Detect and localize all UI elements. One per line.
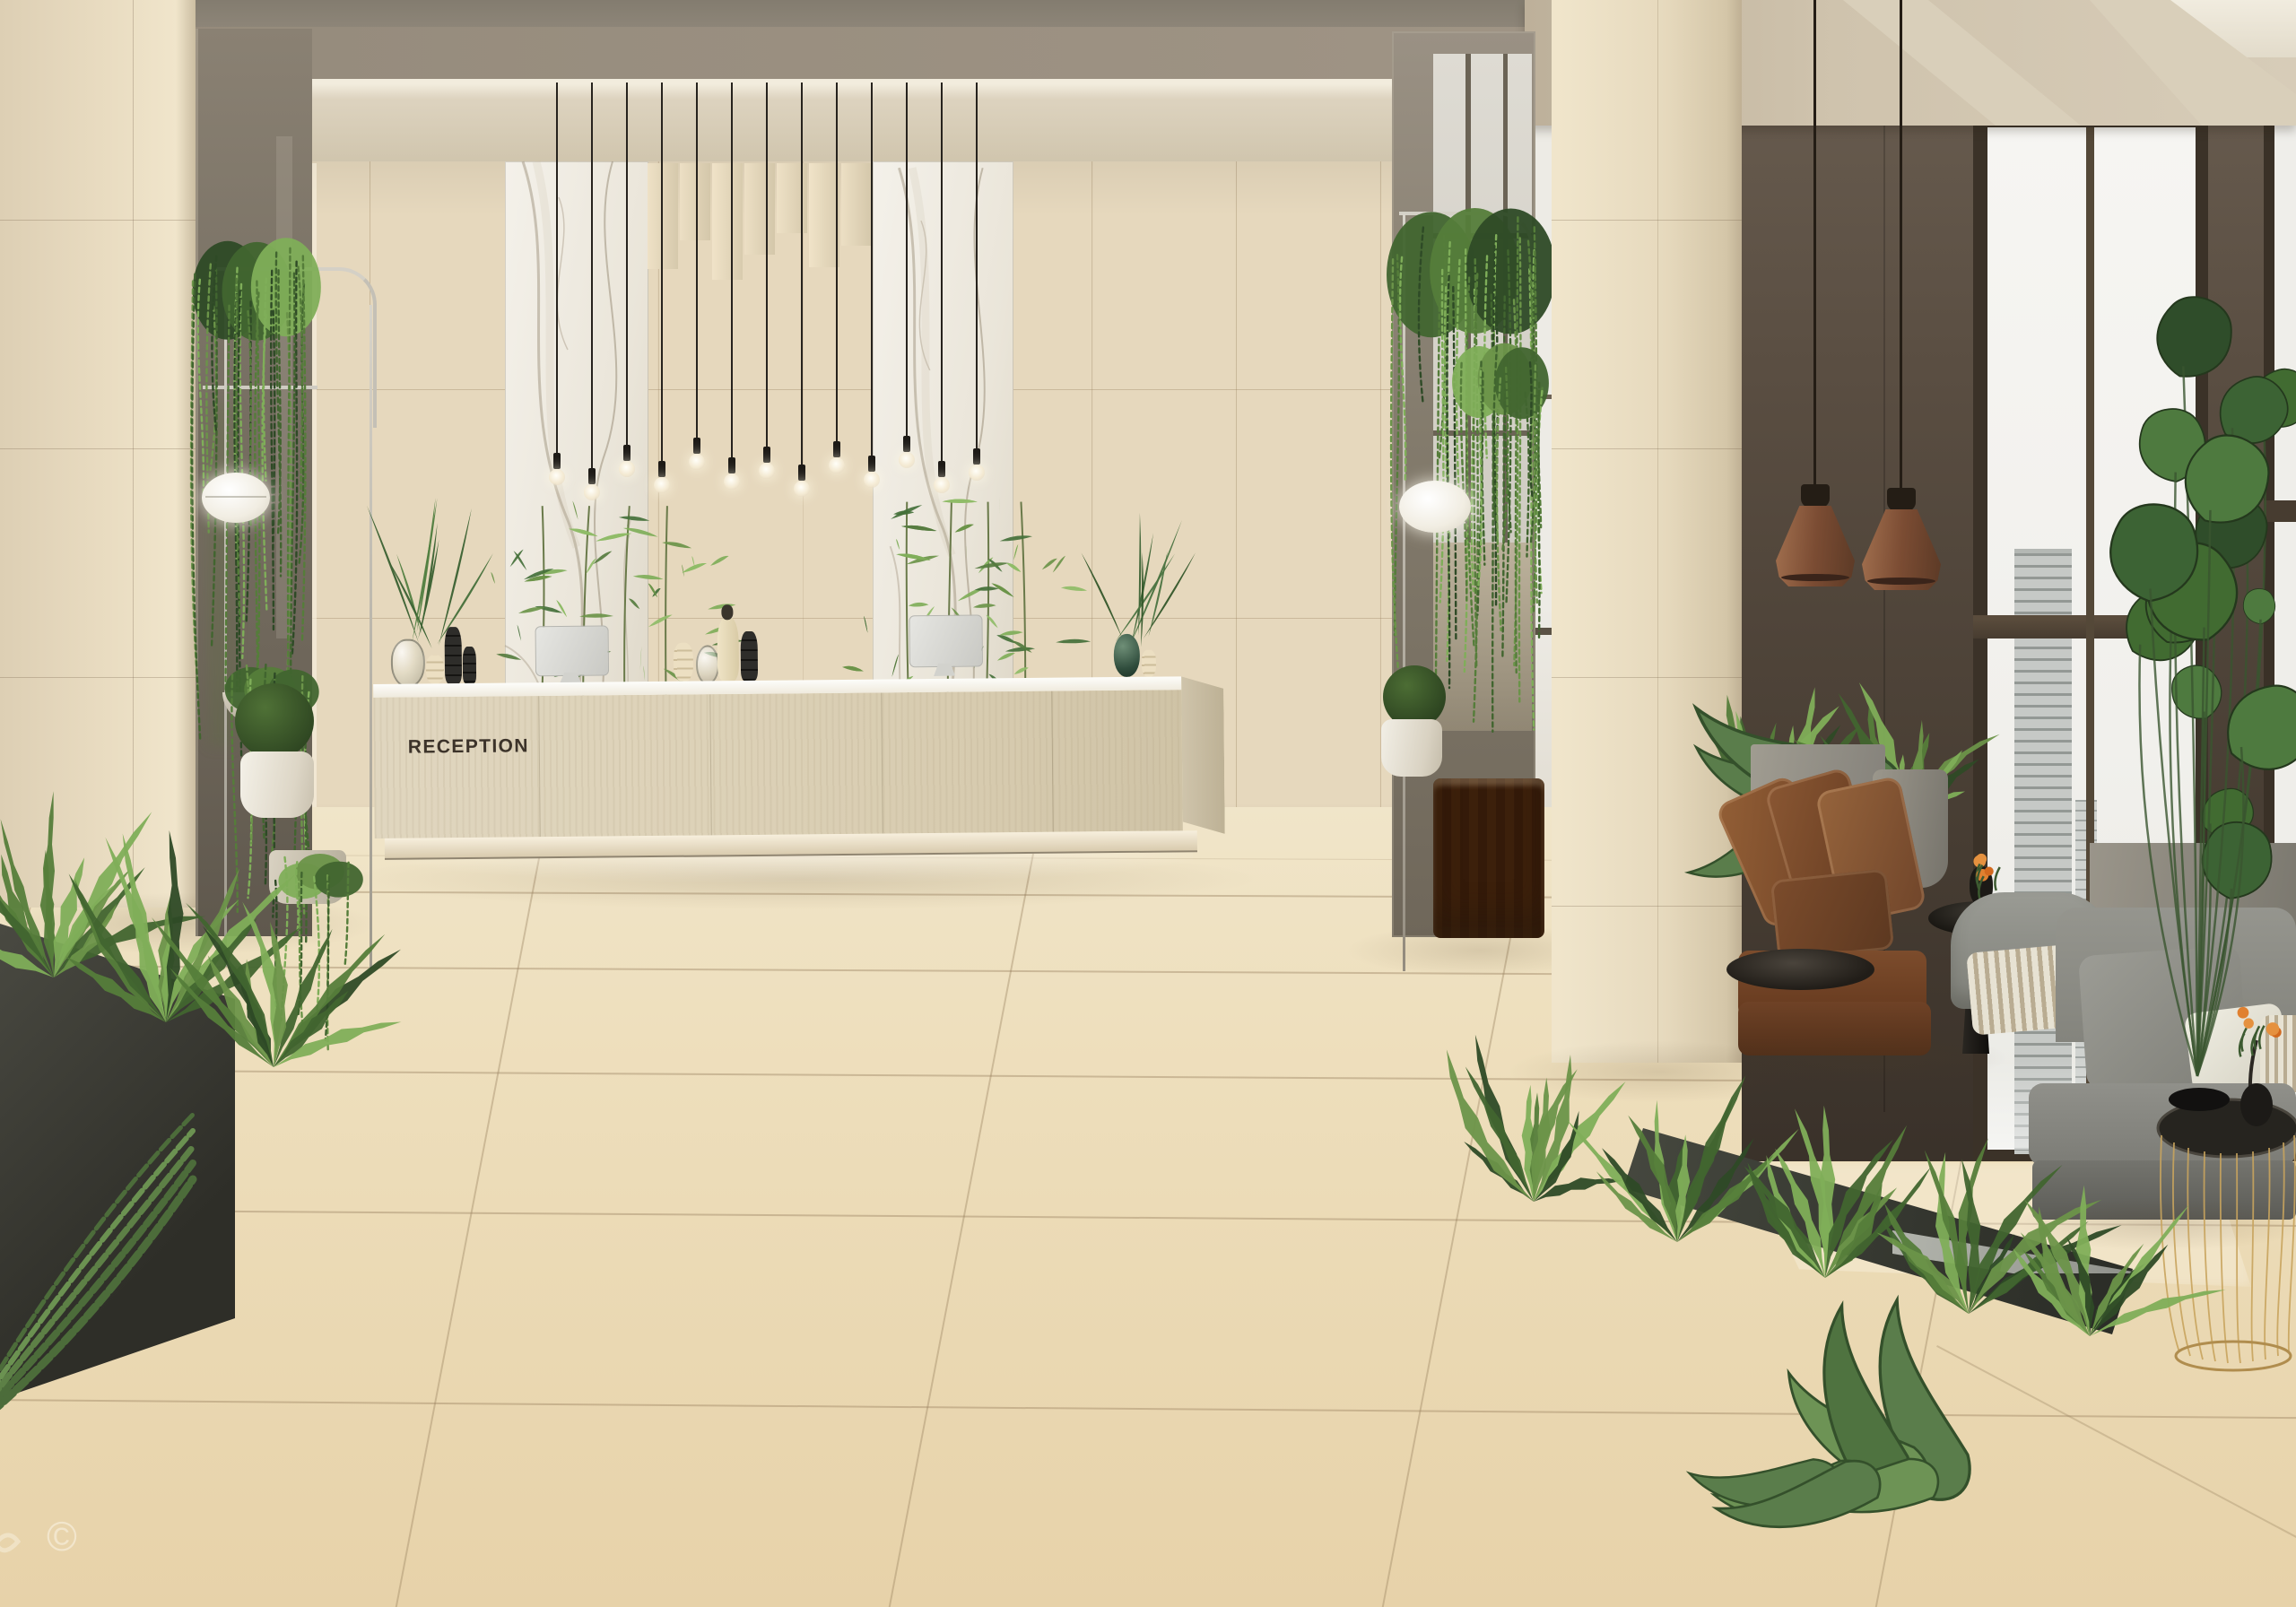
cream-vase	[426, 655, 444, 683]
orange-flower	[1955, 834, 2018, 888]
floor-grout-line	[889, 854, 1034, 1607]
glass-vase	[391, 638, 426, 687]
watermark: ©	[47, 1512, 77, 1560]
reception-desk: RECEPTION	[373, 660, 1225, 861]
sphere-lamp-middle	[1399, 481, 1471, 533]
monitor	[535, 625, 610, 676]
leaf-sprigs-vase	[1058, 489, 1206, 655]
black-vase	[463, 647, 476, 683]
tall-cream-vase	[717, 617, 739, 681]
desk-sign: RECEPTION	[408, 735, 529, 758]
hotel-lobby-render: RECEPTION	[0, 0, 2296, 1607]
copper-pendant-lamp	[1858, 0, 1941, 595]
sphere-lamp-left	[202, 473, 270, 523]
watermark-squiggle	[0, 1520, 45, 1574]
banana-plant	[1686, 986, 2099, 1524]
monitor	[909, 614, 983, 667]
palm-leaf	[0, 1125, 206, 1430]
column	[1552, 0, 1742, 1063]
desk-side-return	[1181, 676, 1225, 847]
black-vase	[445, 627, 463, 683]
wire-table	[2156, 1022, 2296, 1381]
vase-topper	[721, 604, 733, 620]
desk-front-travertine: RECEPTION	[373, 690, 1182, 838]
fern-plants-left	[0, 708, 350, 1193]
cream-vase	[1142, 650, 1156, 677]
cream-vase	[674, 643, 693, 682]
palm-leaves-vase	[330, 489, 518, 655]
white-pot-middle	[1381, 719, 1442, 777]
glass-hourglass	[696, 645, 719, 684]
green-glass-vase	[1114, 634, 1140, 677]
copper-pendant-lamp	[1774, 0, 1857, 592]
black-vase	[741, 631, 759, 681]
